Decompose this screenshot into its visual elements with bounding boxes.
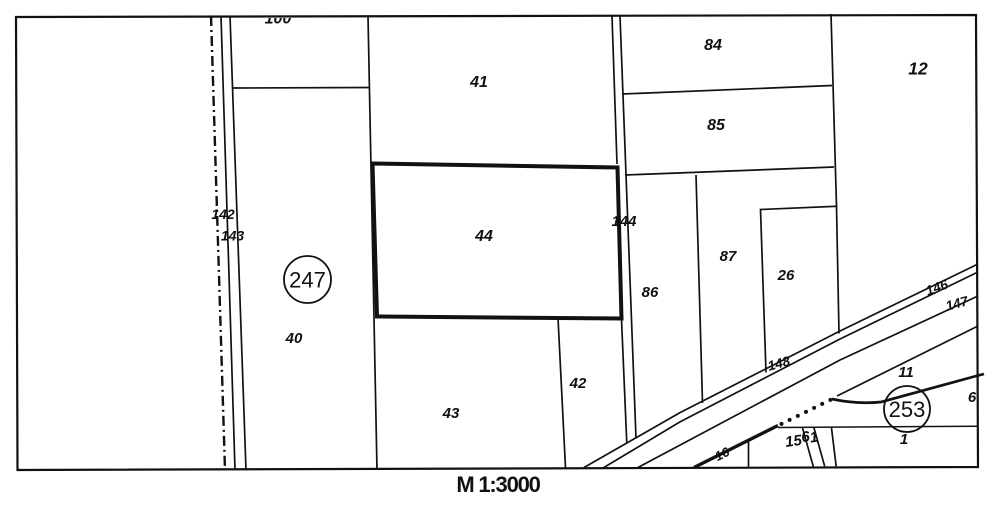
svg-text:253: 253 <box>889 397 926 422</box>
svg-text:1: 1 <box>900 431 908 448</box>
svg-text:40: 40 <box>285 330 303 347</box>
svg-text:6: 6 <box>968 389 977 406</box>
svg-text:42: 42 <box>569 375 587 392</box>
svg-text:143: 143 <box>221 228 245 244</box>
svg-text:41: 41 <box>469 74 488 91</box>
svg-text:44: 44 <box>474 228 493 245</box>
svg-text:84: 84 <box>704 37 722 54</box>
svg-text:43: 43 <box>442 405 460 422</box>
svg-text:26: 26 <box>777 267 795 284</box>
svg-text:247: 247 <box>289 268 326 293</box>
svg-text:86: 86 <box>642 284 659 301</box>
svg-text:87: 87 <box>720 248 737 265</box>
svg-text:M 1:3000: M 1:3000 <box>456 472 540 497</box>
svg-text:85: 85 <box>707 117 726 134</box>
svg-text:12: 12 <box>908 59 928 79</box>
svg-text:142: 142 <box>211 206 235 222</box>
svg-text:11: 11 <box>898 364 914 381</box>
svg-text:144: 144 <box>611 213 637 230</box>
